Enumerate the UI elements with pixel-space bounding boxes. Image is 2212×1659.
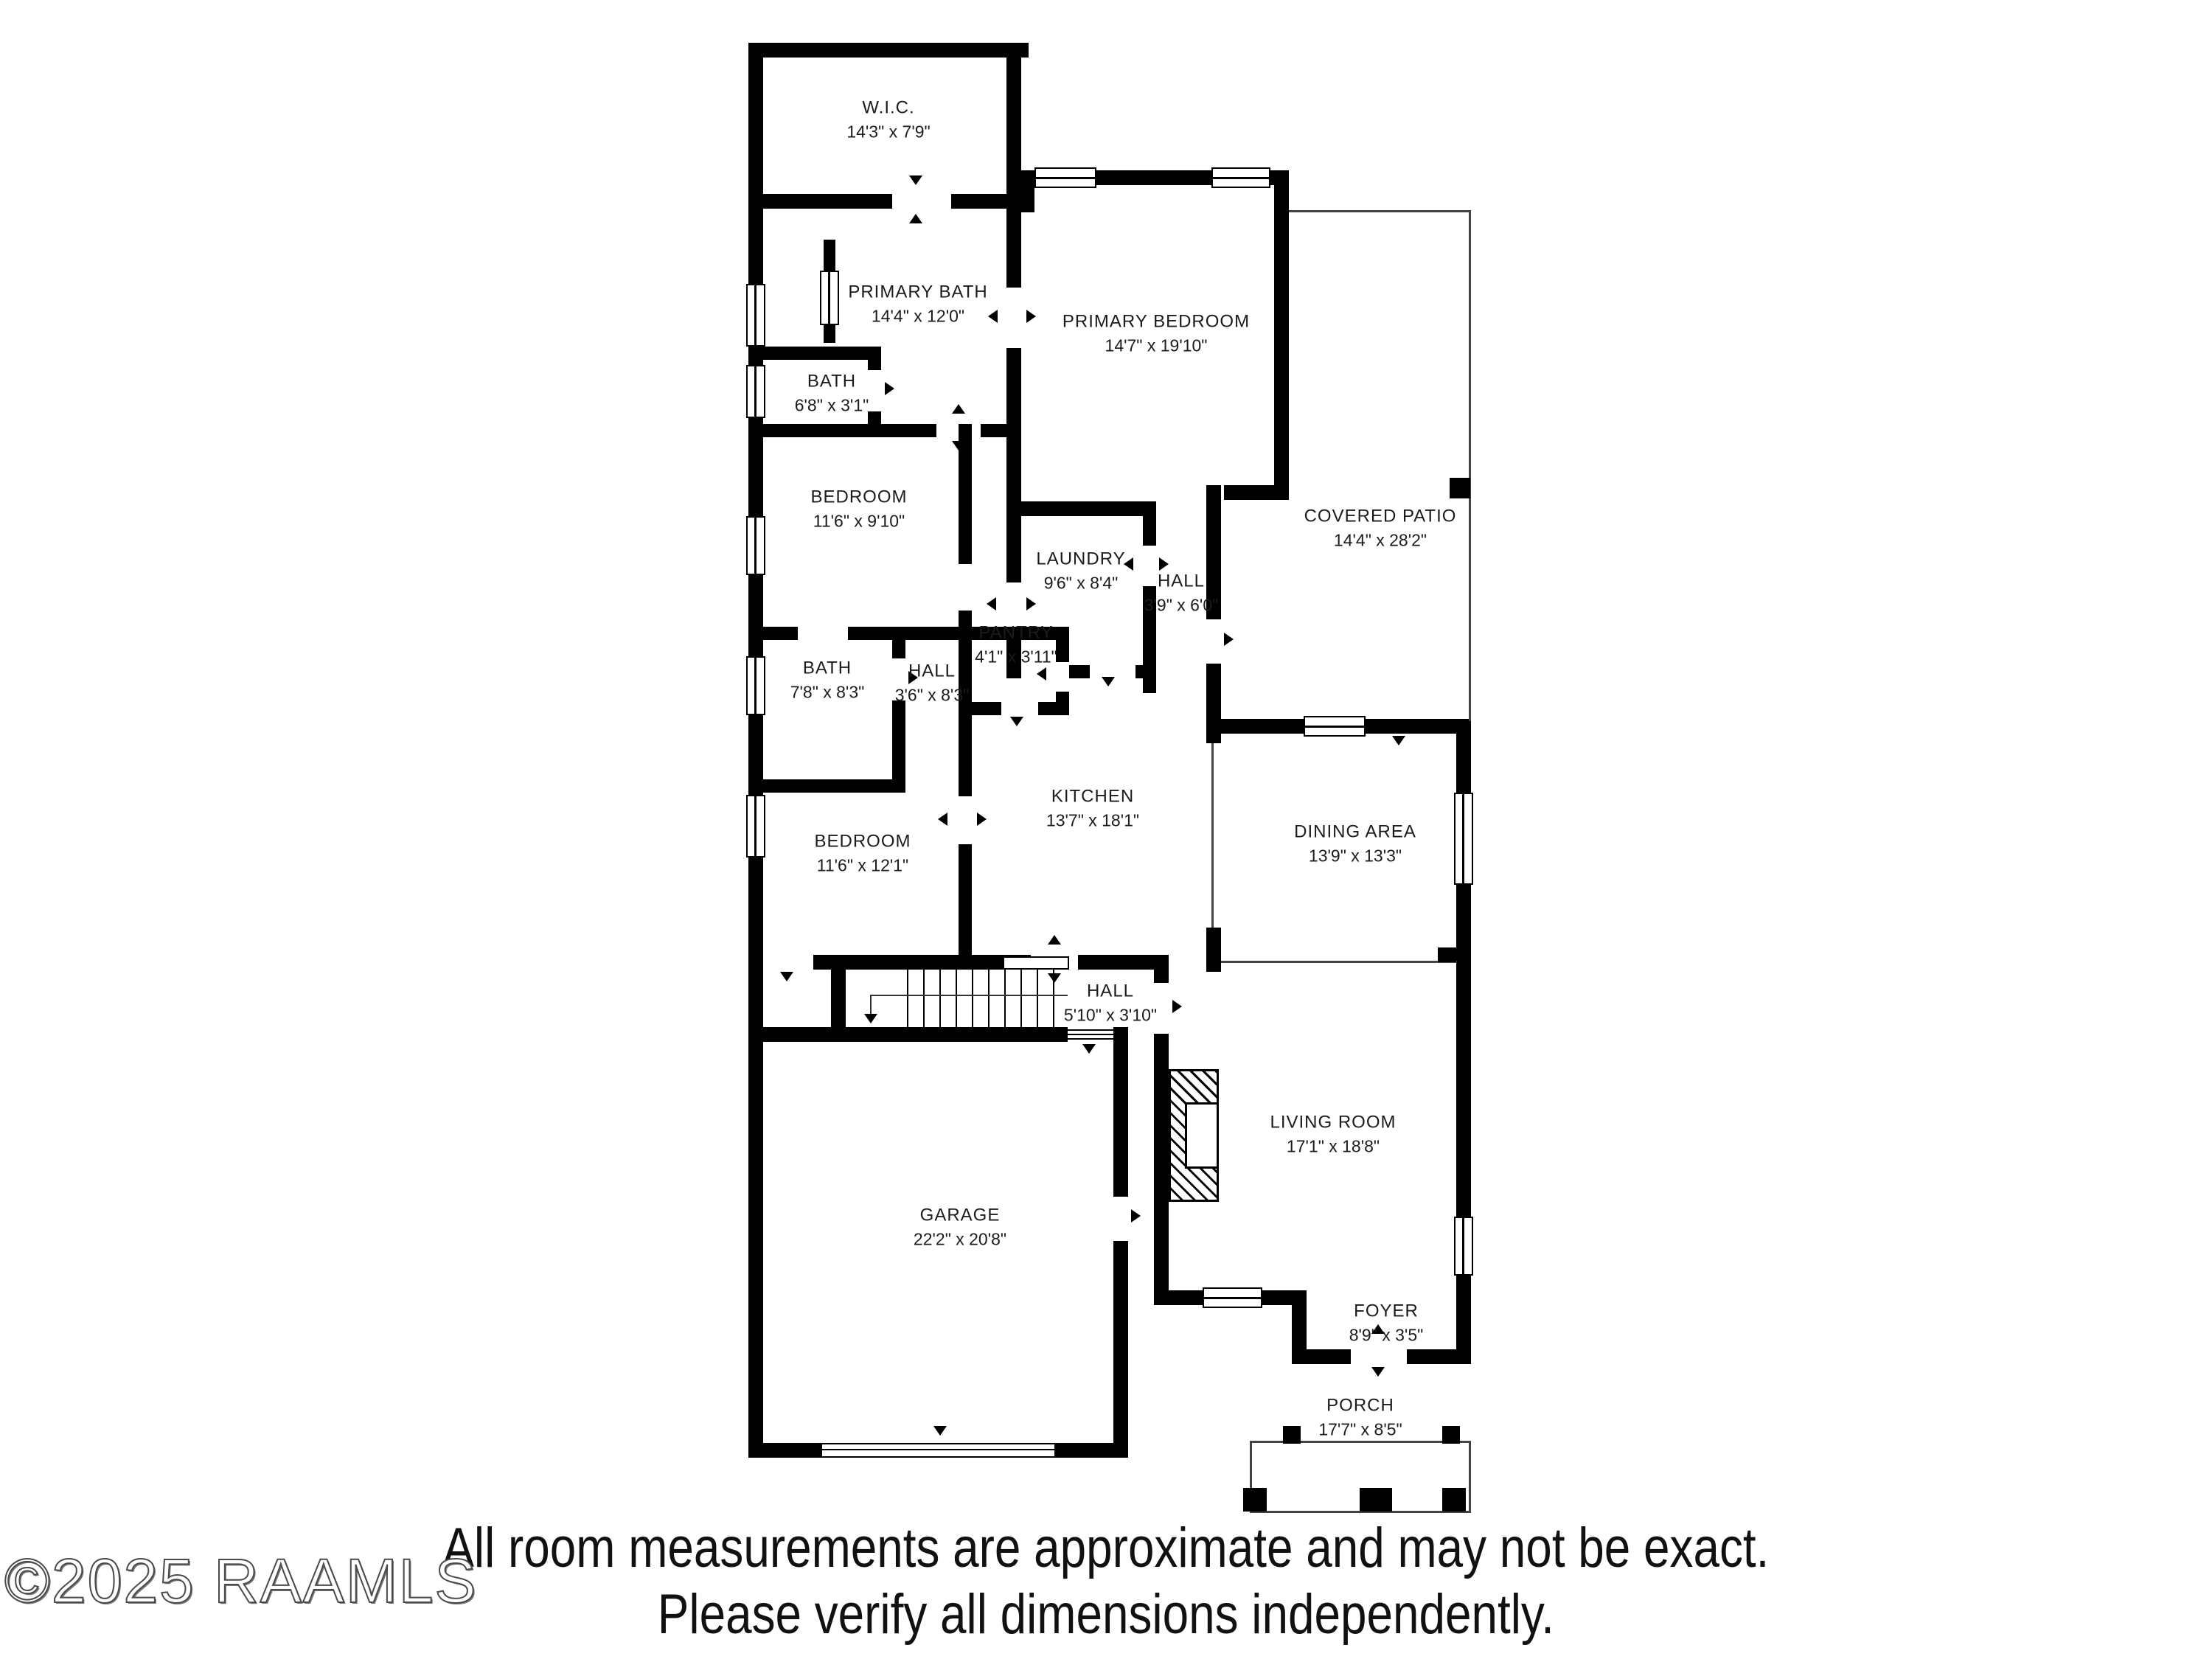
disclaimer-line-2: Please verify all dimensions independent… xyxy=(221,1587,1991,1643)
wall xyxy=(868,347,881,370)
room-label-wic: W.I.C. 14'3" x 7'9" xyxy=(846,96,930,144)
window xyxy=(1211,167,1270,188)
room-label-primary-bedroom: PRIMARY BEDROOM 14'7" x 19'10" xyxy=(1062,310,1250,358)
door-arrow xyxy=(977,813,987,826)
opening-line xyxy=(1221,961,1457,963)
room-label-hall-1: HALL 3'9" x 6'0" xyxy=(1144,569,1219,617)
door-arrow xyxy=(933,1426,947,1436)
door-arrow xyxy=(1048,935,1061,945)
room-name: PRIMARY BEDROOM xyxy=(1062,310,1250,335)
room-name: HALL xyxy=(1064,979,1157,1005)
wall xyxy=(1056,640,1069,662)
wall xyxy=(1006,348,1021,501)
window xyxy=(1034,167,1096,188)
stair-direction-arrow xyxy=(864,1014,877,1023)
door-arrow xyxy=(952,404,965,414)
room-name: FOYER xyxy=(1349,1299,1424,1325)
wall xyxy=(748,1027,1068,1042)
wall xyxy=(748,779,905,793)
wall xyxy=(972,702,1001,715)
room-label-dining-area: DINING AREA 13'9" x 13'3" xyxy=(1294,820,1416,868)
room-name: BEDROOM xyxy=(814,829,911,855)
door-arrow xyxy=(780,972,793,981)
door-arrow xyxy=(1392,736,1405,745)
wall xyxy=(1456,885,1471,1217)
wall xyxy=(1006,212,1021,288)
room-name: HALL xyxy=(1144,569,1219,595)
room-dims: 14'4" x 28'2" xyxy=(1304,529,1457,552)
room-name: KITCHEN xyxy=(1046,785,1139,810)
wall xyxy=(748,194,892,209)
room-dims: 4'1" x 3'11" xyxy=(975,646,1057,668)
wall xyxy=(831,970,846,1027)
porch-post xyxy=(1442,1488,1466,1512)
door-arrow xyxy=(1048,973,1061,983)
wall xyxy=(748,424,936,437)
room-dims: 13'9" x 13'3" xyxy=(1294,845,1416,867)
wall xyxy=(748,347,881,360)
patio-edge xyxy=(1469,210,1471,721)
wall xyxy=(1038,702,1069,715)
wall xyxy=(1054,1443,1128,1458)
disclaimer-text: All room measurements are approximate an… xyxy=(442,1520,1769,1576)
room-label-primary-bath: PRIMARY BATH 14'4" x 12'0" xyxy=(848,280,987,328)
wall xyxy=(748,43,763,1458)
porch-post xyxy=(1442,1426,1460,1444)
window xyxy=(1454,793,1473,885)
room-label-foyer: FOYER 8'9" x 3'5" xyxy=(1349,1299,1424,1347)
wall xyxy=(1274,170,1289,500)
room-name: BATH xyxy=(790,656,865,682)
wall xyxy=(1169,1290,1204,1305)
room-label-bath-2: BATH 7'8" x 8'3" xyxy=(790,656,865,704)
room-name: HALL xyxy=(895,659,970,685)
door-arrow xyxy=(1371,1367,1385,1377)
room-label-garage: GARAGE 22'2" x 20'8" xyxy=(914,1203,1006,1251)
wall xyxy=(1221,719,1305,734)
door-arrow xyxy=(1131,1209,1141,1222)
wall xyxy=(1006,501,1156,516)
room-dims: 22'2" x 20'8" xyxy=(914,1228,1006,1251)
door-arrow xyxy=(1037,667,1046,681)
room-name: LAUNDRY xyxy=(1036,547,1125,573)
room-name: LIVING ROOM xyxy=(1270,1110,1396,1136)
room-label-hall-3: HALL 5'10" x 3'10" xyxy=(1064,979,1157,1027)
window xyxy=(746,284,765,347)
wall xyxy=(1006,43,1021,212)
room-label-pantry: PANTRY 4'1" x 3'11" xyxy=(975,621,1057,669)
room-name: DINING AREA xyxy=(1294,820,1416,846)
room-dims: 13'7" x 18'1" xyxy=(1046,810,1139,832)
room-name: PORCH xyxy=(1318,1394,1402,1419)
porch-edge xyxy=(1469,1441,1471,1513)
wall xyxy=(1006,516,1021,582)
door-arrow xyxy=(988,310,998,323)
disclaimer-text: Please verify all dimensions independent… xyxy=(658,1587,1554,1643)
wall xyxy=(1135,665,1156,678)
wall xyxy=(1456,719,1471,793)
room-dims: 17'1" x 18'8" xyxy=(1270,1135,1396,1158)
room-name: PRIMARY BATH xyxy=(848,280,987,306)
wall xyxy=(1069,665,1090,678)
door-arrow xyxy=(1026,597,1036,611)
window xyxy=(746,656,765,715)
room-dims: 6'8" x 3'1" xyxy=(795,394,869,417)
door-arrow xyxy=(1224,633,1234,646)
garage-door xyxy=(822,1443,1054,1458)
porch-post xyxy=(1360,1488,1392,1512)
door-arrow xyxy=(987,597,996,611)
room-dims: 11'6" x 9'10" xyxy=(810,510,907,532)
wall xyxy=(748,43,1029,58)
patio-post xyxy=(1450,478,1470,498)
window xyxy=(820,271,839,325)
room-dims: 3'9" x 6'0" xyxy=(1144,594,1219,616)
wall xyxy=(748,627,798,640)
door-arrow xyxy=(1026,310,1036,323)
room-dims: 14'7" x 19'10" xyxy=(1062,335,1250,357)
wall xyxy=(1113,1241,1128,1458)
staircase xyxy=(907,970,1069,1027)
room-dims: 11'6" x 12'1" xyxy=(814,855,911,877)
room-name: W.I.C. xyxy=(846,96,930,122)
window xyxy=(1203,1287,1262,1308)
door-arrow xyxy=(909,214,922,223)
room-label-bath-small: BATH 6'8" x 3'1" xyxy=(795,369,869,417)
wall xyxy=(1206,928,1221,972)
room-dims: 17'7" x 8'5" xyxy=(1318,1419,1402,1441)
door-arrow xyxy=(1102,677,1115,686)
room-dims: 14'4" x 12'0" xyxy=(848,305,987,327)
patio-edge xyxy=(1289,210,1471,212)
wall xyxy=(959,844,972,970)
door-arrow xyxy=(1010,717,1023,726)
porch-post xyxy=(1243,1488,1267,1512)
room-name: GARAGE xyxy=(914,1203,1006,1229)
door-arrow xyxy=(1082,1044,1096,1054)
wall xyxy=(1438,947,1456,962)
wall xyxy=(1456,1276,1471,1359)
room-label-kitchen: KITCHEN 13'7" x 18'1" xyxy=(1046,785,1139,832)
door-arrow xyxy=(1172,1000,1182,1013)
wall xyxy=(1113,1027,1128,1197)
disclaimer-line-1: All room measurements are approximate an… xyxy=(221,1520,1991,1576)
wall xyxy=(1143,516,1156,546)
wall xyxy=(1364,719,1456,734)
wall xyxy=(1292,1349,1351,1364)
stair-landing xyxy=(1003,956,1069,970)
room-label-bedroom-1: BEDROOM 11'6" x 9'10" xyxy=(810,485,907,533)
window xyxy=(1454,1217,1473,1276)
wall xyxy=(951,194,1021,209)
room-dims: 14'3" x 7'9" xyxy=(846,121,930,143)
wall xyxy=(1021,170,1036,185)
wall xyxy=(892,640,905,658)
wall xyxy=(1292,1290,1307,1349)
room-dims: 7'8" x 8'3" xyxy=(790,681,865,703)
room-label-laundry: LAUNDRY 9'6" x 8'4" xyxy=(1036,547,1125,595)
door-arrow xyxy=(885,382,894,395)
wall xyxy=(1154,1034,1169,1305)
porch-post xyxy=(1283,1426,1301,1444)
room-name: COVERED PATIO xyxy=(1304,504,1457,530)
room-dims: 5'10" x 3'10" xyxy=(1064,1004,1157,1026)
wall xyxy=(981,424,1006,437)
window xyxy=(1304,716,1366,737)
wall xyxy=(848,627,972,640)
wall xyxy=(1206,664,1221,743)
room-name: BEDROOM xyxy=(810,485,907,511)
room-label-bedroom-2: BEDROOM 11'6" x 12'1" xyxy=(814,829,911,877)
stair-run-line xyxy=(870,995,872,1015)
wall xyxy=(1261,1290,1292,1305)
room-dims: 9'6" x 8'4" xyxy=(1036,572,1125,594)
window xyxy=(746,365,765,418)
room-name: BATH xyxy=(795,369,869,395)
room-label-covered-patio: COVERED PATIO 14'4" x 28'2" xyxy=(1304,504,1457,552)
room-name: PANTRY xyxy=(975,621,1057,647)
wall xyxy=(1407,1349,1471,1364)
room-label-living-room: LIVING ROOM 17'1" x 18'8" xyxy=(1270,1110,1396,1158)
interior-door-opening xyxy=(1068,1029,1113,1040)
fireplace-opening xyxy=(1185,1102,1219,1169)
door-arrow xyxy=(909,175,922,185)
window xyxy=(746,795,765,858)
door-arrow xyxy=(938,813,947,826)
floor-plan: W.I.C. 14'3" x 7'9" PRIMARY BATH 14'4" x… xyxy=(0,0,2212,1659)
wall xyxy=(748,1443,822,1458)
wall xyxy=(1224,485,1289,500)
room-dims: 8'9" x 3'5" xyxy=(1349,1324,1424,1346)
wall xyxy=(813,955,972,970)
room-dims: 3'6" x 8'3" xyxy=(895,684,970,706)
mls-watermark: ©2025 RAAMLS xyxy=(4,1545,478,1617)
window xyxy=(746,516,765,575)
opening-line xyxy=(1211,743,1214,928)
door-arrow xyxy=(952,441,965,451)
room-label-hall-2: HALL 3'6" x 8'3" xyxy=(895,659,970,707)
stair-run-line xyxy=(870,995,1068,996)
room-label-porch: PORCH 17'7" x 8'5" xyxy=(1318,1394,1402,1441)
wall xyxy=(1095,170,1213,185)
